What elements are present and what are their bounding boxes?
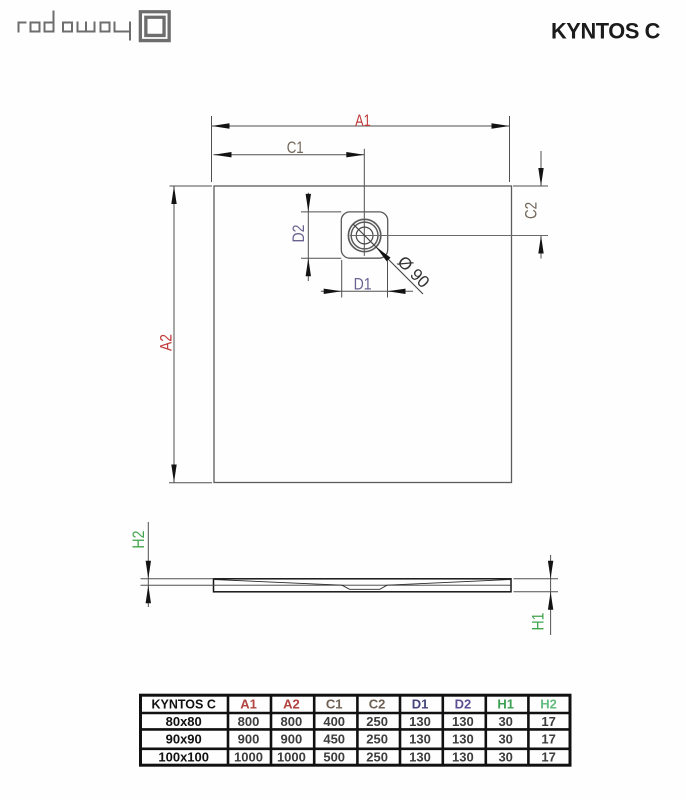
svg-text:C1: C1 xyxy=(326,696,343,711)
svg-text:KYNTOS C: KYNTOS C xyxy=(152,697,216,711)
svg-text:30: 30 xyxy=(498,714,512,729)
svg-text:17: 17 xyxy=(541,714,555,729)
svg-text:250: 250 xyxy=(366,750,388,765)
svg-text:130: 130 xyxy=(409,714,431,729)
svg-text:A1: A1 xyxy=(240,696,257,711)
svg-text:H2: H2 xyxy=(129,531,148,549)
svg-text:130: 130 xyxy=(409,732,431,747)
svg-text:130: 130 xyxy=(452,714,474,729)
svg-text:17: 17 xyxy=(541,750,555,765)
svg-text:30: 30 xyxy=(498,732,512,747)
svg-text:D2: D2 xyxy=(289,225,308,243)
svg-text:130: 130 xyxy=(409,750,431,765)
svg-text:H1: H1 xyxy=(529,613,548,631)
svg-text:800: 800 xyxy=(281,714,303,729)
svg-text:250: 250 xyxy=(366,732,388,747)
svg-text:130: 130 xyxy=(452,750,474,765)
svg-text:A1: A1 xyxy=(355,111,371,130)
svg-text:KYNTOS C: KYNTOS C xyxy=(551,19,661,44)
svg-text:C1: C1 xyxy=(287,138,304,157)
svg-text:A2: A2 xyxy=(157,334,176,351)
svg-text:1000: 1000 xyxy=(234,750,263,765)
svg-text:100x100: 100x100 xyxy=(158,750,209,765)
svg-text:D1: D1 xyxy=(354,275,372,294)
svg-text:A2: A2 xyxy=(283,696,300,711)
svg-text:90x90: 90x90 xyxy=(166,732,202,747)
svg-text:800: 800 xyxy=(238,714,260,729)
svg-text:900: 900 xyxy=(238,732,260,747)
svg-text:1000: 1000 xyxy=(277,750,306,765)
svg-text:80x80: 80x80 xyxy=(166,714,202,729)
svg-text:D1: D1 xyxy=(412,696,429,711)
svg-text:400: 400 xyxy=(323,714,345,729)
svg-text:30: 30 xyxy=(498,750,512,765)
svg-text:C2: C2 xyxy=(369,696,386,711)
svg-text:450: 450 xyxy=(323,732,345,747)
svg-text:900: 900 xyxy=(281,732,303,747)
svg-text:C2: C2 xyxy=(522,202,541,219)
svg-text:D2: D2 xyxy=(455,696,472,711)
svg-text:H1: H1 xyxy=(497,696,514,711)
svg-text:250: 250 xyxy=(366,714,388,729)
svg-text:17: 17 xyxy=(541,732,555,747)
svg-text:130: 130 xyxy=(452,732,474,747)
svg-text:H2: H2 xyxy=(540,696,557,711)
svg-text:500: 500 xyxy=(323,750,345,765)
